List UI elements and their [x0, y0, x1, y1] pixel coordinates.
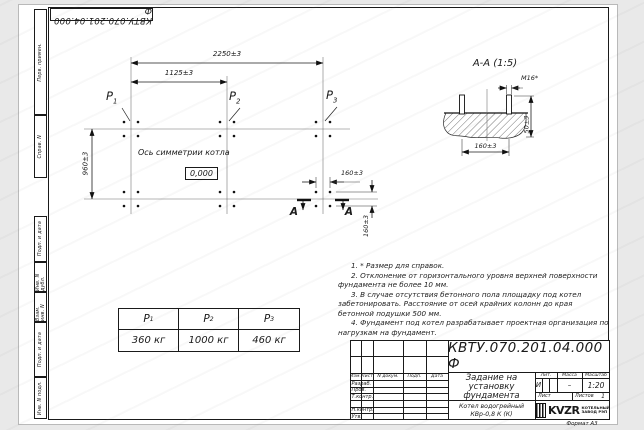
product-name-line-2: КВр-0,8 К (К)	[448, 410, 535, 418]
anchor-bolt-right	[507, 95, 512, 114]
section-letter-right: А	[343, 207, 355, 219]
dim-depth-label: 960±3	[81, 144, 92, 184]
load-point-label-p1: P1	[106, 90, 117, 106]
col-list: Лист	[361, 373, 373, 380]
load-table: P1 P2 P3 360 кг 1000 кг 460 кг	[118, 308, 300, 352]
dim-half-width-label: 1125±3	[149, 70, 209, 78]
load-table-value-p1: 360 кг	[119, 330, 179, 351]
load-point-label-p2: P2	[229, 90, 240, 106]
kvzr-logo-text: KVZR	[548, 404, 579, 417]
sheets-value: 1	[596, 392, 610, 400]
row-razrab: Разраб.	[350, 380, 373, 387]
product-name-line-1: Котел водогрейный	[448, 402, 535, 410]
drawing-sheet-viewport: КВТУ.070.201.04.000 Ф Перв. примен. Спра…	[0, 0, 644, 430]
drawing-title-line-3: фундамента	[448, 391, 535, 400]
note-2: 2. Отклонение от горизонтального уровня …	[338, 271, 610, 290]
load-table-header-p3: P3	[239, 309, 299, 330]
manufacturer-logo: KVZR КОТЕЛЬНЫЙ ЗАВОД РЭП	[535, 400, 610, 420]
scale-value: 1:20	[582, 378, 610, 392]
lit-value: И	[535, 378, 542, 392]
row-tkontr: Т.контр.	[350, 393, 373, 400]
note-1: 1. * Размер для справок.	[338, 261, 610, 271]
dim-bolt-x-label: 160±3	[334, 170, 370, 177]
anchor-bolt-left	[460, 95, 465, 114]
plan-dimensions	[92, 63, 377, 218]
load-table-header-p2: P2	[179, 309, 239, 330]
row-utv: Утв.	[350, 413, 373, 420]
mass-value: –	[557, 378, 582, 392]
format-label: Формат А3	[552, 421, 612, 427]
thread-size-label: М16*	[521, 75, 538, 82]
dim-total-width-label: 2250±3	[197, 51, 257, 59]
kvzr-logo-caption: КОТЕЛЬНЫЙ ЗАВОД РЭП	[581, 406, 610, 415]
title-block-doc-number: КВТУ.070.201.04.000 Ф	[448, 340, 610, 372]
plan-centerlines	[84, 57, 378, 214]
dim-protrusion-label: 50±3	[523, 110, 532, 140]
load-point-label-p3: P3	[326, 89, 337, 105]
dim-bolt-y-label: 160±3	[362, 206, 372, 246]
boiler-symmetry-axis-label: Ось симметрии котла	[138, 149, 228, 158]
sheets-label: Листов	[572, 392, 596, 400]
section-letter-left: А	[288, 207, 300, 219]
section-view-title: А-А (1:5)	[463, 58, 527, 69]
concrete-foundation-hatch	[444, 113, 527, 138]
dim-section-bolt-spacing-label: 160±3	[462, 143, 509, 150]
level-mark-box: 0,000	[185, 167, 218, 180]
technical-notes: 1. * Размер для справок. 2. Отклонение о…	[338, 261, 610, 337]
load-table-header-p1: P1	[119, 309, 179, 330]
load-table-value-p3: 460 кг	[239, 330, 299, 351]
note-4: 4. Фундамент под котел разрабатывает про…	[338, 318, 610, 337]
kvzr-logo-icon	[535, 403, 546, 418]
row-empty	[350, 400, 373, 407]
section-view-geometry	[444, 89, 529, 141]
col-podp: Подп.	[403, 373, 426, 380]
sheet-label: Лист	[535, 392, 572, 400]
col-izm: Изм.	[350, 373, 361, 380]
note-3: 3. В случае отсутствия бетонного пола пл…	[338, 290, 610, 319]
col-ndokum: N докум.	[373, 373, 403, 380]
plan-leader-lines	[122, 107, 337, 121]
col-data: Дата	[426, 373, 448, 380]
load-table-value-p2: 1000 кг	[179, 330, 239, 351]
